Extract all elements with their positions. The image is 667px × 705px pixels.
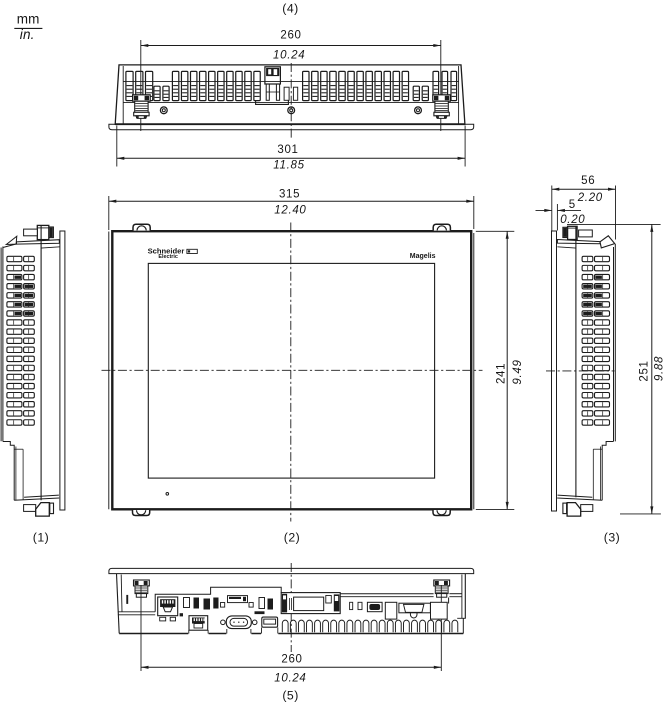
svg-text:Magelis: Magelis bbox=[410, 253, 436, 260]
svg-text:241: 241 bbox=[496, 363, 508, 384]
svg-text:Electric: Electric bbox=[158, 254, 177, 260]
svg-text:10.24: 10.24 bbox=[273, 50, 305, 62]
svg-text:(3): (3) bbox=[604, 531, 621, 545]
svg-text:10.24: 10.24 bbox=[274, 673, 306, 685]
svg-text:(2): (2) bbox=[284, 531, 301, 545]
svg-text:(5): (5) bbox=[282, 689, 299, 703]
svg-text:260: 260 bbox=[280, 30, 301, 42]
svg-text:in.: in. bbox=[20, 27, 35, 42]
svg-text:315: 315 bbox=[279, 189, 300, 201]
svg-text:(4): (4) bbox=[282, 2, 299, 16]
svg-text:9.49: 9.49 bbox=[512, 359, 524, 384]
svg-text:2.20: 2.20 bbox=[577, 192, 603, 204]
svg-text:301: 301 bbox=[277, 144, 298, 156]
svg-text:(1): (1) bbox=[33, 531, 50, 545]
svg-text:260: 260 bbox=[281, 654, 302, 666]
svg-text:56: 56 bbox=[581, 175, 595, 187]
svg-text:251: 251 bbox=[639, 360, 651, 381]
svg-text:mm: mm bbox=[17, 12, 40, 27]
svg-text:11.85: 11.85 bbox=[273, 160, 304, 172]
svg-text:9.88: 9.88 bbox=[653, 356, 665, 381]
svg-text:12.40: 12.40 bbox=[274, 205, 306, 217]
svg-text:5: 5 bbox=[569, 199, 576, 211]
